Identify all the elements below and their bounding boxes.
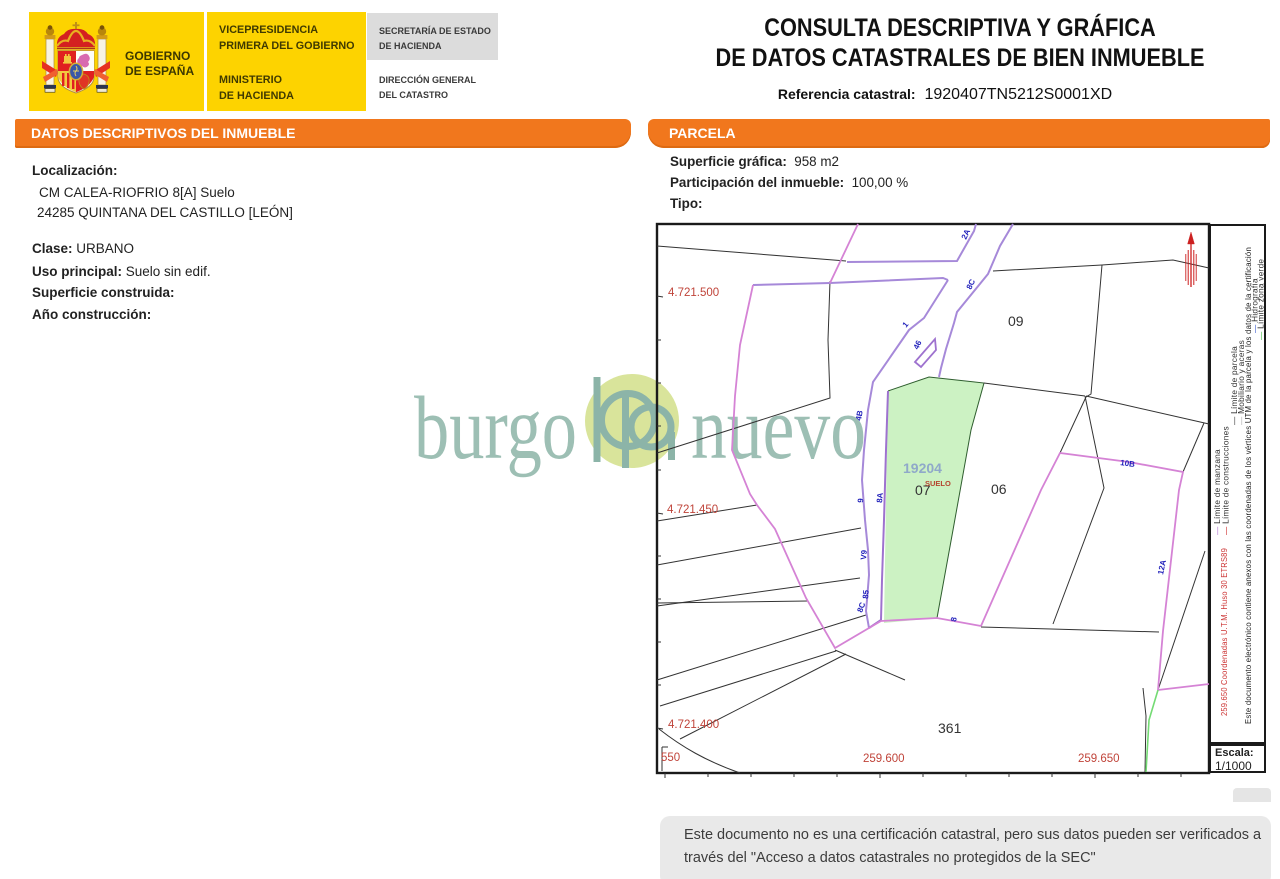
- svg-text:259.650 Coordenadas U.T.M. Hus: 259.650 Coordenadas U.T.M. Huso 30 ETRS8…: [1219, 548, 1229, 716]
- svg-text:— Límite zona verde: — Límite zona verde: [1256, 259, 1266, 340]
- svg-text:— Límite de construcciones: — Límite de construcciones: [1221, 426, 1231, 535]
- svg-text:Este documento electrónico con: Este documento electrónico contiene anex…: [1243, 247, 1253, 724]
